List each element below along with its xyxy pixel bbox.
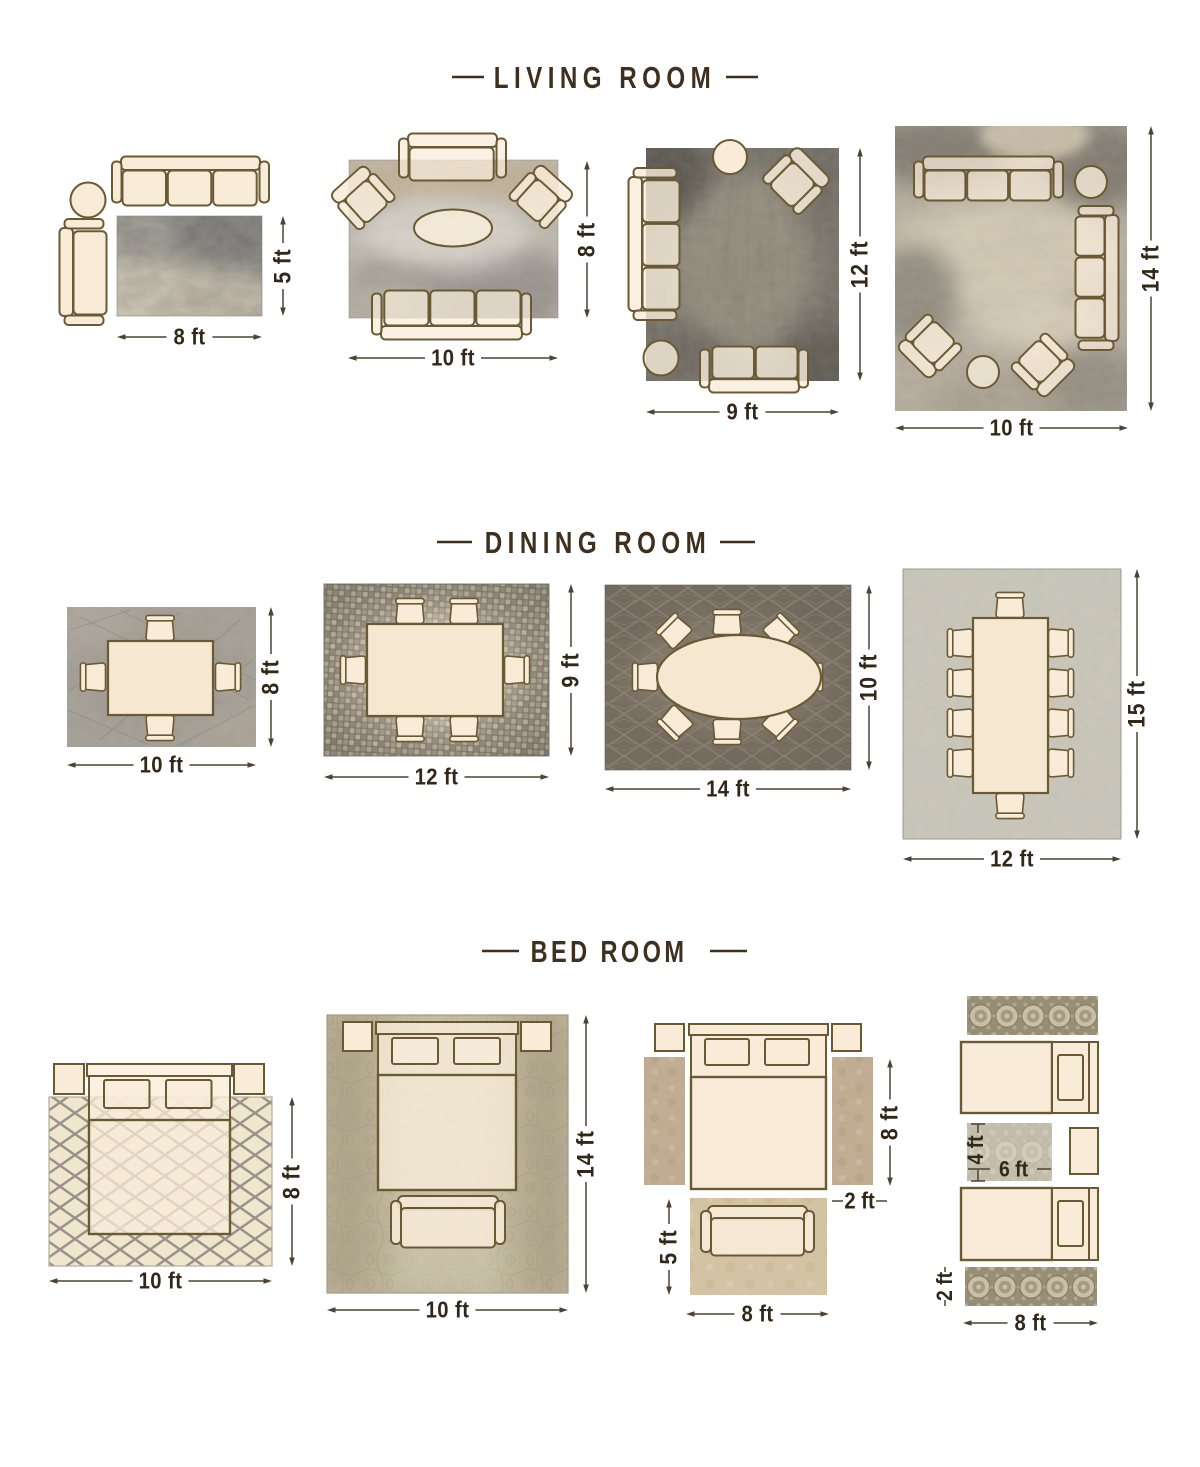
svg-text:14 ft: 14 ft (706, 775, 750, 802)
svg-text:6 ft: 6 ft (999, 1157, 1028, 1181)
svg-text:8 ft: 8 ft (1014, 1309, 1046, 1336)
svg-text:12 ft: 12 ft (990, 845, 1034, 872)
svg-text:9 ft: 9 ft (726, 398, 758, 425)
svg-text:10 ft: 10 ft (139, 1267, 183, 1294)
svg-text:LIVING ROOM: LIVING ROOM (494, 60, 717, 95)
svg-text:8 ft: 8 ft (741, 1300, 773, 1327)
svg-text:10 ft: 10 ft (140, 751, 184, 778)
svg-text:10 ft: 10 ft (855, 654, 882, 702)
svg-text:5 ft: 5 ft (269, 248, 296, 283)
svg-text:15 ft: 15 ft (1123, 680, 1150, 728)
svg-text:8 ft: 8 ft (173, 323, 205, 350)
svg-text:10 ft: 10 ft (431, 344, 475, 371)
svg-text:14 ft: 14 ft (1137, 245, 1164, 293)
svg-text:8 ft: 8 ft (573, 222, 600, 257)
svg-text:8 ft: 8 ft (278, 1164, 305, 1199)
svg-text:2 ft: 2 ft (933, 1272, 957, 1301)
svg-text:8 ft: 8 ft (257, 659, 284, 694)
svg-text:10 ft: 10 ft (426, 1296, 470, 1323)
svg-text:10 ft: 10 ft (990, 414, 1034, 441)
svg-text:9 ft: 9 ft (557, 652, 584, 687)
svg-text:DINING ROOM: DINING ROOM (485, 525, 712, 560)
svg-text:14 ft: 14 ft (572, 1130, 599, 1178)
svg-text:5 ft: 5 ft (655, 1229, 682, 1264)
svg-text:8 ft: 8 ft (876, 1105, 903, 1140)
svg-text:12 ft: 12 ft (415, 763, 459, 790)
svg-text:12 ft: 12 ft (846, 241, 873, 289)
svg-text:BED ROOM: BED ROOM (531, 934, 688, 969)
svg-text:2 ft: 2 ft (844, 1187, 874, 1214)
svg-text:4 ft: 4 ft (964, 1135, 988, 1164)
